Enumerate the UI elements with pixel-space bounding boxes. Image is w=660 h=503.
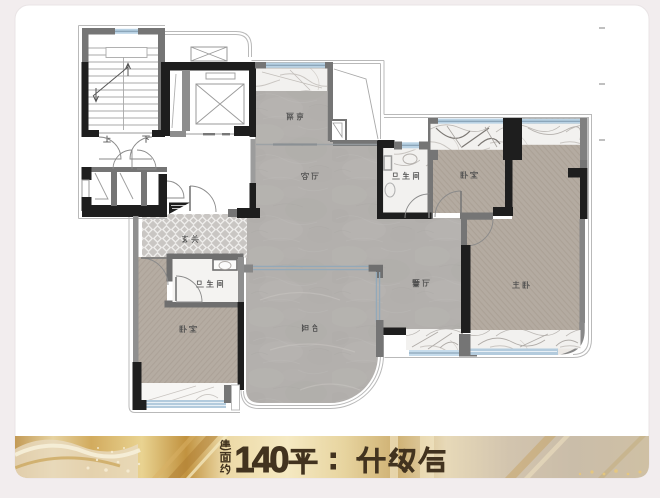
svg-text:140: 140 <box>235 439 289 480</box>
